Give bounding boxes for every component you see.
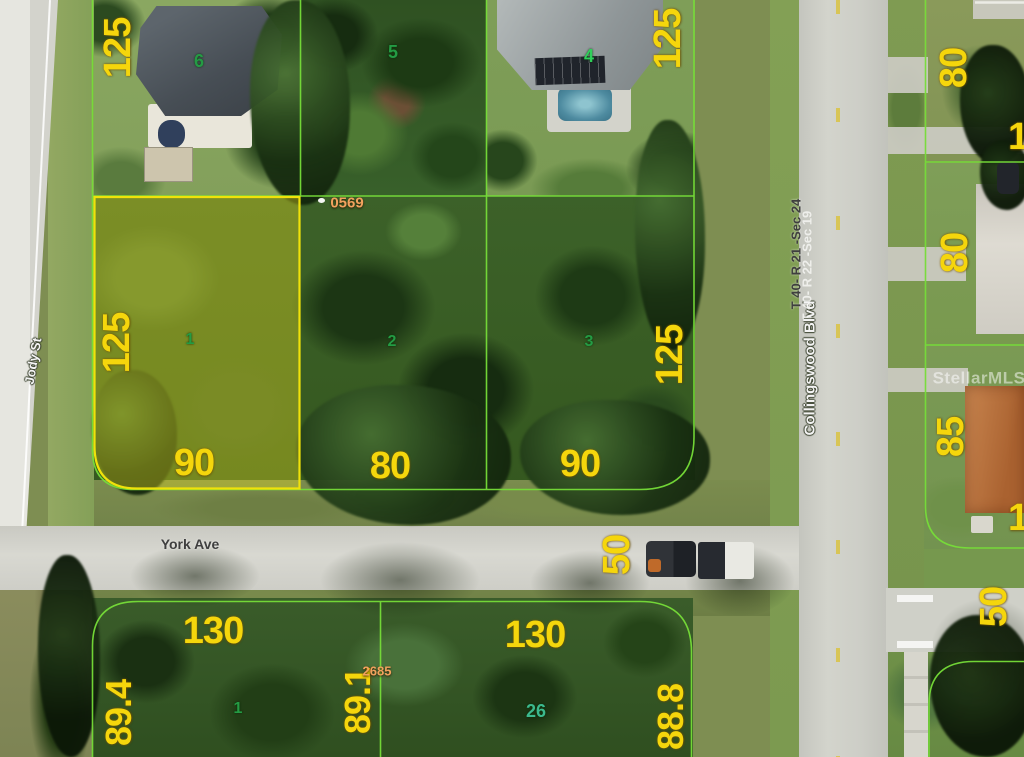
sidewalk [904, 652, 928, 757]
house-east-orange-roof [965, 386, 1024, 513]
dim-80-lot2-front: 80 [370, 447, 410, 485]
lot-number-1: 1 [186, 332, 195, 348]
driveway [973, 0, 1024, 19]
dim-85-right: 85 [932, 417, 970, 457]
dim-partial-right-a: 1 [1008, 118, 1024, 156]
dim-50-right: 50 [975, 587, 1013, 627]
aerial-parcel-map: 125 125 125 125 90 80 90 50 130 130 89.4… [0, 0, 1024, 757]
dim-50-york: 50 [598, 535, 636, 575]
swimming-pool [558, 87, 612, 121]
tree-cluster [38, 555, 100, 757]
ref-0569: 0569 [330, 196, 363, 211]
dim-125-lot4-east: 125 [649, 9, 687, 69]
dim-130-south-right: 130 [505, 616, 565, 654]
section-label-primary: T 40- R 21 -Sec 24 [790, 199, 803, 310]
street-label-york-ave: York Ave [161, 537, 220, 551]
utility-pad [971, 516, 993, 533]
parked-car [158, 120, 185, 148]
dim-88-8: 88.8 [653, 684, 689, 750]
collingswood-west-berm [770, 0, 802, 757]
dim-130-south-left: 130 [183, 612, 243, 650]
dim-125-lot1-west: 125 [98, 313, 136, 373]
lot-number-6: 6 [194, 52, 204, 70]
collingswood-centerline [836, 0, 840, 757]
dim-125-lot3-east: 125 [651, 325, 689, 385]
crosswalk-stripe [897, 641, 933, 648]
west-grass-strip [48, 0, 94, 540]
dim-90-lot3-front: 90 [560, 445, 600, 483]
ref-2685: 2685 [363, 665, 392, 678]
shed [144, 147, 193, 182]
dim-80-right-mid: 80 [936, 233, 974, 273]
lot-number-3: 3 [585, 334, 594, 350]
stellar-mls-watermark: StellarMLS [933, 370, 1024, 387]
dim-partial-right-b: 1 [1008, 499, 1024, 537]
crosswalk-stripe [897, 595, 933, 602]
dim-80-right-top: 80 [935, 48, 973, 88]
lot-number-26: 26 [526, 702, 546, 720]
dim-125-lot6-west: 125 [99, 18, 137, 78]
lot-number-south-1: 1 [234, 701, 243, 717]
driveway [888, 57, 928, 93]
solar-panel [535, 56, 606, 85]
dim-89-4: 89.4 [101, 680, 137, 746]
trailer [698, 542, 754, 579]
lot-number-2: 2 [388, 334, 397, 350]
truck-cargo [648, 559, 661, 572]
parked-car [997, 162, 1019, 194]
dim-90-lot1-front: 90 [174, 444, 214, 482]
lot-number-5: 5 [388, 43, 398, 61]
lot-number-4: 4 [584, 47, 594, 65]
survey-dot [318, 198, 325, 203]
